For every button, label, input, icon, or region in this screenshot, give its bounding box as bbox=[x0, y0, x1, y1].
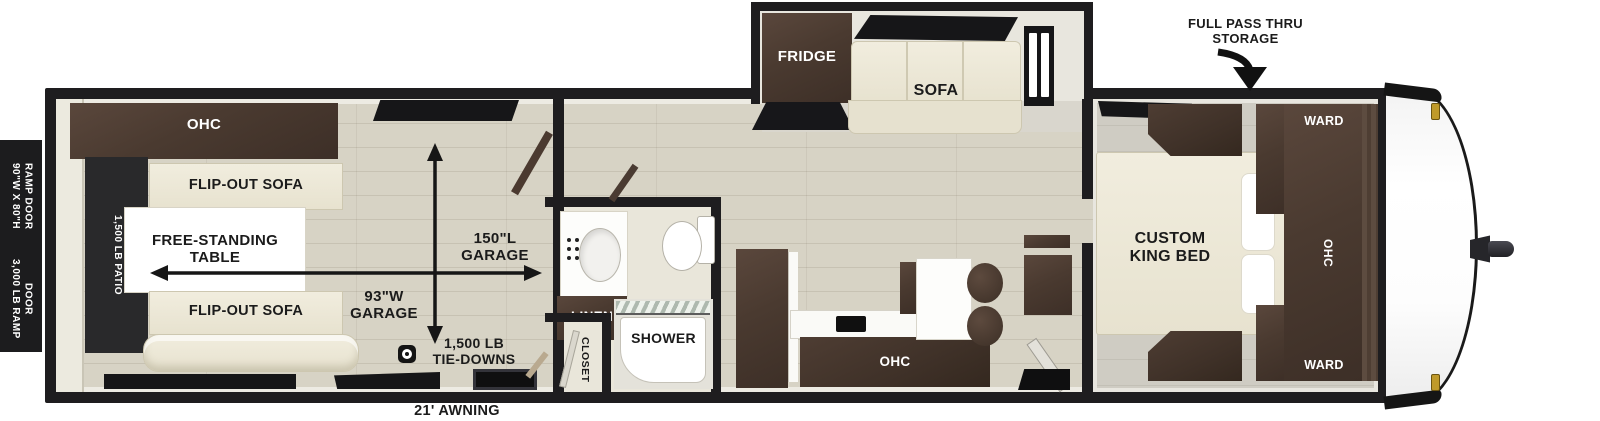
sofa: SOFA bbox=[851, 41, 1021, 105]
shower-label: SHOWER bbox=[614, 331, 713, 347]
bathroom-vanity bbox=[560, 211, 628, 297]
pass-thru-storage-label: FULL PASS THRU STORAGE bbox=[1163, 16, 1328, 47]
wardrobe-bottom-label: WARD bbox=[1284, 358, 1364, 372]
main-entry-step bbox=[1018, 369, 1070, 390]
tie-down-anchor-icon bbox=[398, 345, 416, 363]
garage-length-label: 150"L GARAGE bbox=[438, 231, 552, 265]
shower-stall: SHOWER bbox=[614, 299, 713, 389]
wardrobe-main: WARD OHC WARD bbox=[1284, 104, 1364, 381]
garage-ohc-label: OHC bbox=[70, 117, 338, 134]
tie-downs-label: 1,500 LB TIE-DOWNS bbox=[422, 336, 526, 367]
king-bed-label: CUSTOM KING BED bbox=[1104, 230, 1236, 266]
flip-out-sofa-bottom-label: FLIP-OUT SOFA bbox=[150, 303, 342, 319]
front-cap bbox=[1386, 88, 1478, 404]
wardrobe-top-label: WARD bbox=[1284, 114, 1364, 128]
free-standing-table: FREE-STANDING TABLE bbox=[124, 207, 306, 293]
fridge-label: FRIDGE bbox=[762, 49, 852, 66]
free-standing-table-label: FREE-STANDING TABLE bbox=[152, 233, 278, 267]
ramp-door-size-label: 90"W X 80"H RAMP DOOR bbox=[9, 148, 34, 244]
flip-out-sofa-top: FLIP-OUT SOFA bbox=[149, 163, 343, 210]
awning-label: 21' AWNING bbox=[398, 403, 516, 419]
rv-floorplan-canvas: 90"W X 80"H RAMP DOOR 3,000 LB RAMP DOOR… bbox=[0, 0, 1600, 421]
sofa-label: SOFA bbox=[852, 82, 1020, 100]
patio-rating-label: 1,500 LB PATIO bbox=[110, 215, 123, 295]
marker-light-bottom bbox=[1431, 374, 1440, 391]
garage-bottom-window-left bbox=[104, 374, 296, 389]
garage-width-label: 93"W GARAGE bbox=[338, 289, 430, 323]
fridge-base bbox=[752, 102, 854, 130]
pass-thru-storage-floor bbox=[1362, 104, 1378, 381]
garage-top-window bbox=[373, 100, 519, 121]
rolled-sofa-cushion bbox=[143, 334, 359, 372]
wall-cabinet-upper bbox=[1024, 235, 1070, 248]
slide-sofa-window bbox=[854, 15, 1018, 41]
kitchen-tall-cabinet bbox=[736, 249, 788, 388]
sink-basin bbox=[579, 228, 621, 282]
dinette-table bbox=[916, 258, 972, 340]
slide-side-window bbox=[1024, 26, 1054, 106]
flip-out-sofa-top-label: FLIP-OUT SOFA bbox=[150, 177, 342, 193]
ramp-door-callout: 90"W X 80"H RAMP DOOR 3,000 LB RAMP DOOR bbox=[0, 140, 42, 352]
kitchen-ohc-cabinet: OHC bbox=[800, 337, 990, 387]
bedroom-partition-wall-bottom bbox=[1082, 243, 1093, 392]
faucet-icon bbox=[567, 238, 571, 242]
toilet-bowl bbox=[662, 221, 702, 271]
fridge: FRIDGE bbox=[762, 13, 852, 103]
closet-right-wall bbox=[602, 313, 611, 392]
dinette-side-panel bbox=[900, 262, 916, 314]
shower-pan bbox=[620, 317, 706, 383]
closet-label: CLOSET bbox=[578, 330, 591, 390]
bedroom-ohc-label: OHC bbox=[1320, 228, 1335, 278]
bedroom-partition-wall-top bbox=[1082, 99, 1093, 199]
cooktop bbox=[836, 316, 866, 332]
shower-glass bbox=[616, 301, 710, 315]
garage-ohc-cabinet: OHC bbox=[70, 103, 338, 159]
hitch-coupler bbox=[1488, 241, 1514, 257]
kitchen-ohc-label: OHC bbox=[800, 354, 990, 369]
dinette-chair-top bbox=[967, 263, 1003, 303]
wall-entertainment-cabinet bbox=[1024, 255, 1072, 315]
marker-light-top bbox=[1431, 103, 1440, 120]
sofa-seat-front bbox=[848, 100, 1022, 134]
ramp-door-rating-label: 3,000 LB RAMP DOOR bbox=[9, 252, 34, 346]
bathroom-top-wall bbox=[545, 197, 721, 207]
dinette-chair-bottom bbox=[967, 306, 1003, 346]
pass-thru-arrow-icon bbox=[1218, 52, 1267, 91]
flip-out-sofa-bottom: FLIP-OUT SOFA bbox=[149, 291, 343, 335]
